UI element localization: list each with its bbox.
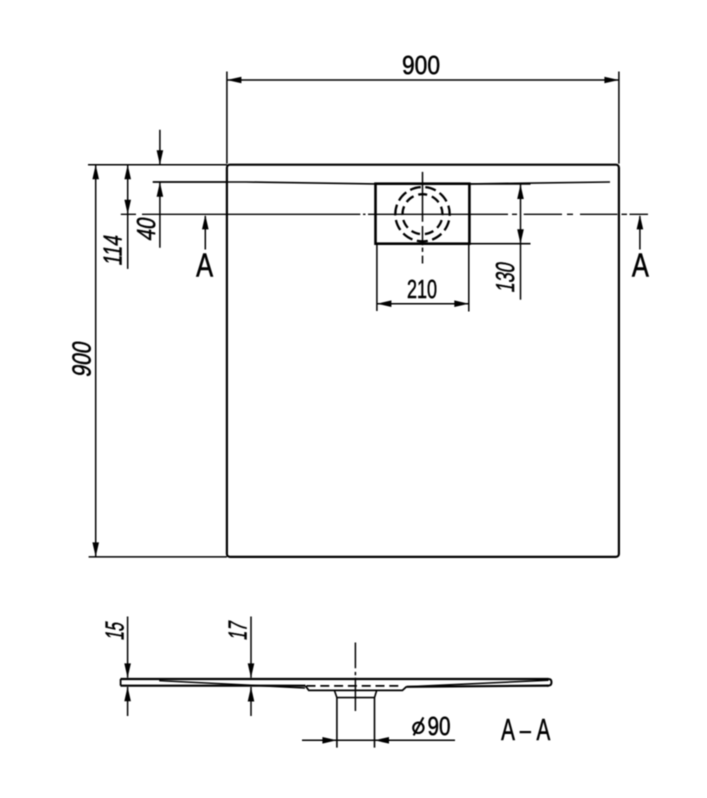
svg-text:114: 114 [98, 232, 128, 267]
svg-text:900: 900 [66, 339, 96, 379]
svg-text:210: 210 [407, 274, 437, 304]
svg-text:130: 130 [490, 259, 520, 294]
svg-text:A: A [501, 713, 515, 747]
svg-text:15: 15 [100, 619, 130, 642]
svg-text:17: 17 [223, 619, 253, 642]
svg-text:900: 900 [402, 50, 440, 80]
svg-text:40: 40 [131, 215, 161, 243]
svg-text:A: A [196, 247, 213, 284]
svg-text:90: 90 [428, 711, 451, 741]
svg-text:A: A [632, 247, 649, 284]
svg-text:A: A [537, 713, 551, 747]
